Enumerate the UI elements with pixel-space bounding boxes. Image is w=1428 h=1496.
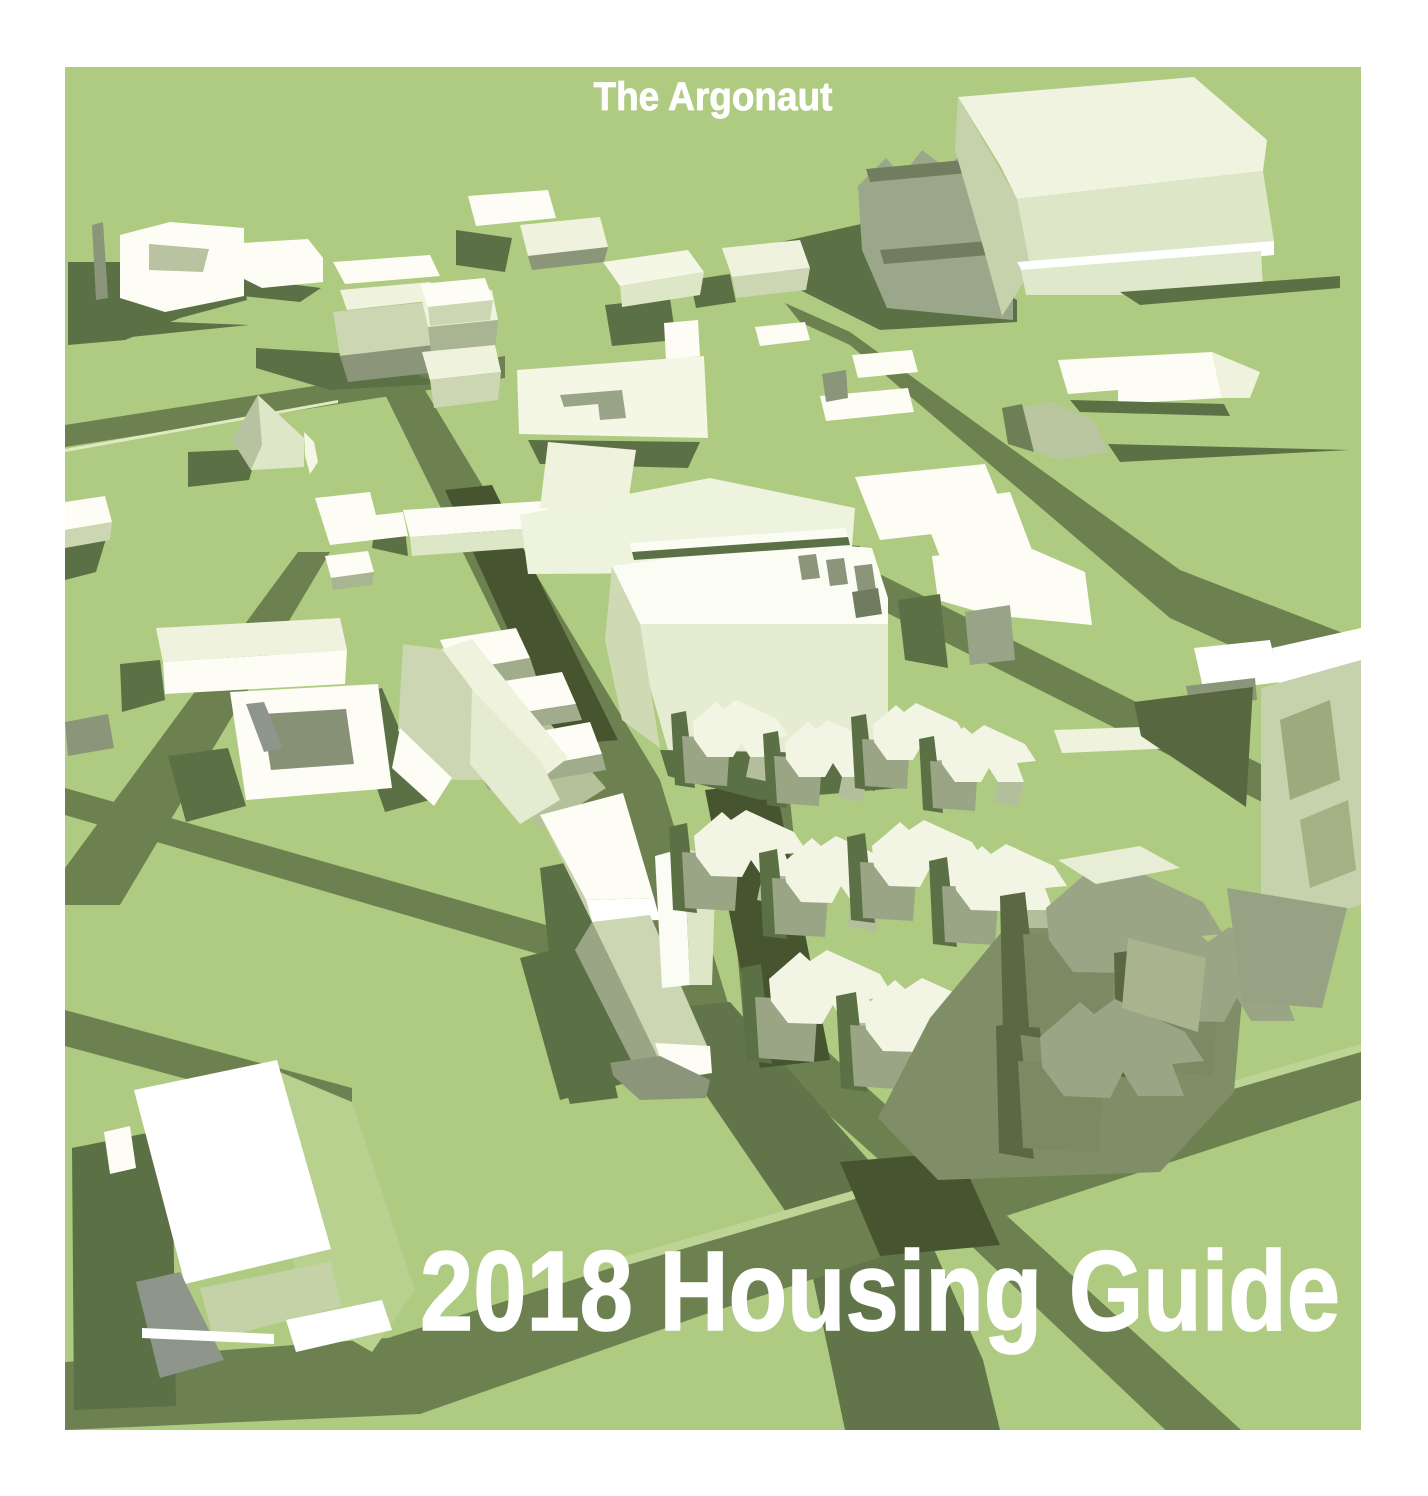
svg-text:2018 Housing Guide: 2018 Housing Guide bbox=[420, 1228, 1340, 1354]
svg-text:The Argonaut: The Argonaut bbox=[594, 75, 833, 119]
